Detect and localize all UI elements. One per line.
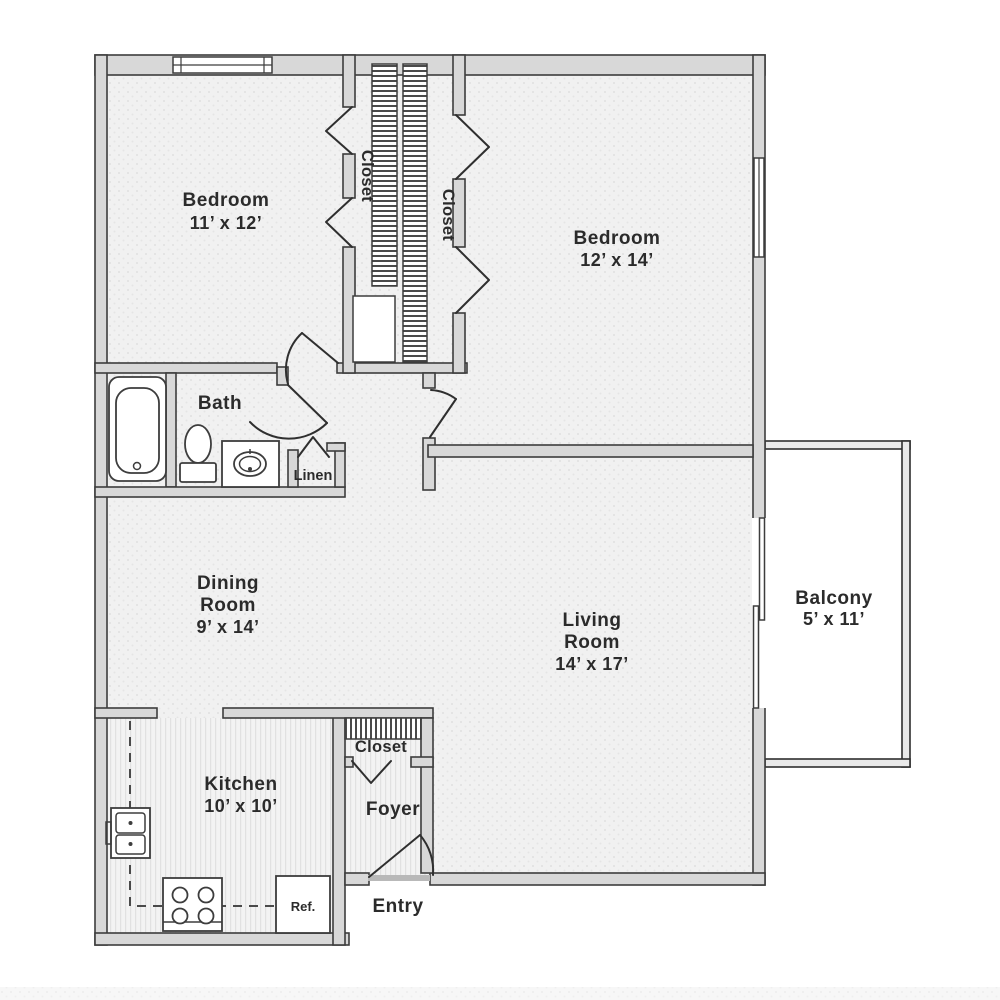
svg-text:9’ x 14’: 9’ x 14’	[196, 617, 259, 637]
svg-text:Dining: Dining	[197, 573, 259, 594]
wall-segment	[95, 55, 107, 945]
floor-textures	[0, 61, 1000, 1000]
svg-text:11’ x 12’: 11’ x 12’	[190, 213, 263, 233]
balcony-label: Balcony 5’ x 11’	[795, 588, 872, 629]
closet-left-label: Closet	[358, 150, 376, 202]
wall-segment	[765, 759, 910, 767]
svg-text:Living: Living	[563, 610, 622, 631]
refrigerator-label: Ref.	[291, 899, 316, 914]
sliding-door-panel	[754, 606, 759, 708]
wall-segment	[337, 363, 467, 373]
svg-text:10’ x 10’: 10’ x 10’	[204, 796, 278, 816]
sliding-door-panel	[760, 518, 765, 620]
closet-right-label: Closet	[439, 189, 457, 241]
living-room-label: Living Room 14’ x 17’	[555, 610, 629, 674]
wall-segment	[902, 441, 910, 767]
bedroom1-window	[173, 57, 272, 73]
wall-segment	[333, 712, 345, 945]
wall-segment	[95, 363, 277, 373]
bath-label: Bath	[198, 393, 242, 414]
wall-segment	[223, 708, 433, 718]
wall-segment	[453, 313, 465, 373]
wall-segment	[430, 873, 765, 885]
svg-text:Bedroom: Bedroom	[183, 190, 270, 211]
linen-closet-label: Linen	[294, 468, 333, 484]
wall-segment	[95, 708, 157, 718]
outside-mask	[349, 886, 1000, 1000]
svg-text:Room: Room	[564, 632, 620, 653]
wall-segment	[95, 933, 349, 945]
foyer-closet-label: Closet	[355, 738, 407, 756]
wall-segment	[411, 757, 433, 767]
svg-text:5’ x 11’: 5’ x 11’	[803, 609, 865, 629]
closet-shelf-box	[353, 296, 395, 362]
svg-text:Kitchen: Kitchen	[204, 774, 277, 795]
bedroom2-window	[754, 158, 764, 257]
svg-text:14’ x 17’: 14’ x 17’	[555, 654, 629, 674]
svg-text:Room: Room	[200, 595, 256, 616]
bathtub	[109, 377, 166, 481]
foyer-label: Foyer	[366, 799, 420, 820]
wall-segment	[421, 718, 433, 873]
kitchen-sink	[106, 808, 150, 858]
balcony-sliding-door	[752, 518, 766, 708]
stove	[163, 878, 222, 931]
bottom-speckle-band	[0, 987, 1000, 1000]
wall-segment	[453, 55, 465, 115]
svg-text:Balcony: Balcony	[795, 588, 872, 609]
wall-segment	[343, 55, 355, 107]
wall-segment	[166, 373, 176, 487]
wall-segment	[428, 445, 753, 457]
wall-segment	[95, 487, 345, 497]
entry-threshold	[368, 875, 430, 881]
foyer-closet-shelf	[345, 718, 421, 739]
entry-label: Entry	[372, 896, 423, 917]
floor-plan-drawing: Ref. Bedroom 11’ x 12’ Bedroom 12’ x 14’…	[0, 0, 1000, 1000]
svg-text:12’ x 14’: 12’ x 14’	[580, 250, 654, 270]
wall-segment	[343, 154, 355, 198]
dining-room-label: Dining Room 9’ x 14’	[196, 573, 259, 637]
refrigerator: Ref.	[276, 876, 330, 933]
wall-segment	[765, 441, 910, 449]
svg-text:Bedroom: Bedroom	[574, 228, 661, 249]
wall-segment	[345, 873, 369, 885]
bathroom-sink	[222, 441, 279, 487]
closet-rod-right	[403, 64, 427, 362]
floor-plan: Ref. Bedroom 11’ x 12’ Bedroom 12’ x 14’…	[0, 0, 1000, 1000]
wall-segment	[423, 373, 435, 388]
wall-segment	[327, 443, 345, 451]
